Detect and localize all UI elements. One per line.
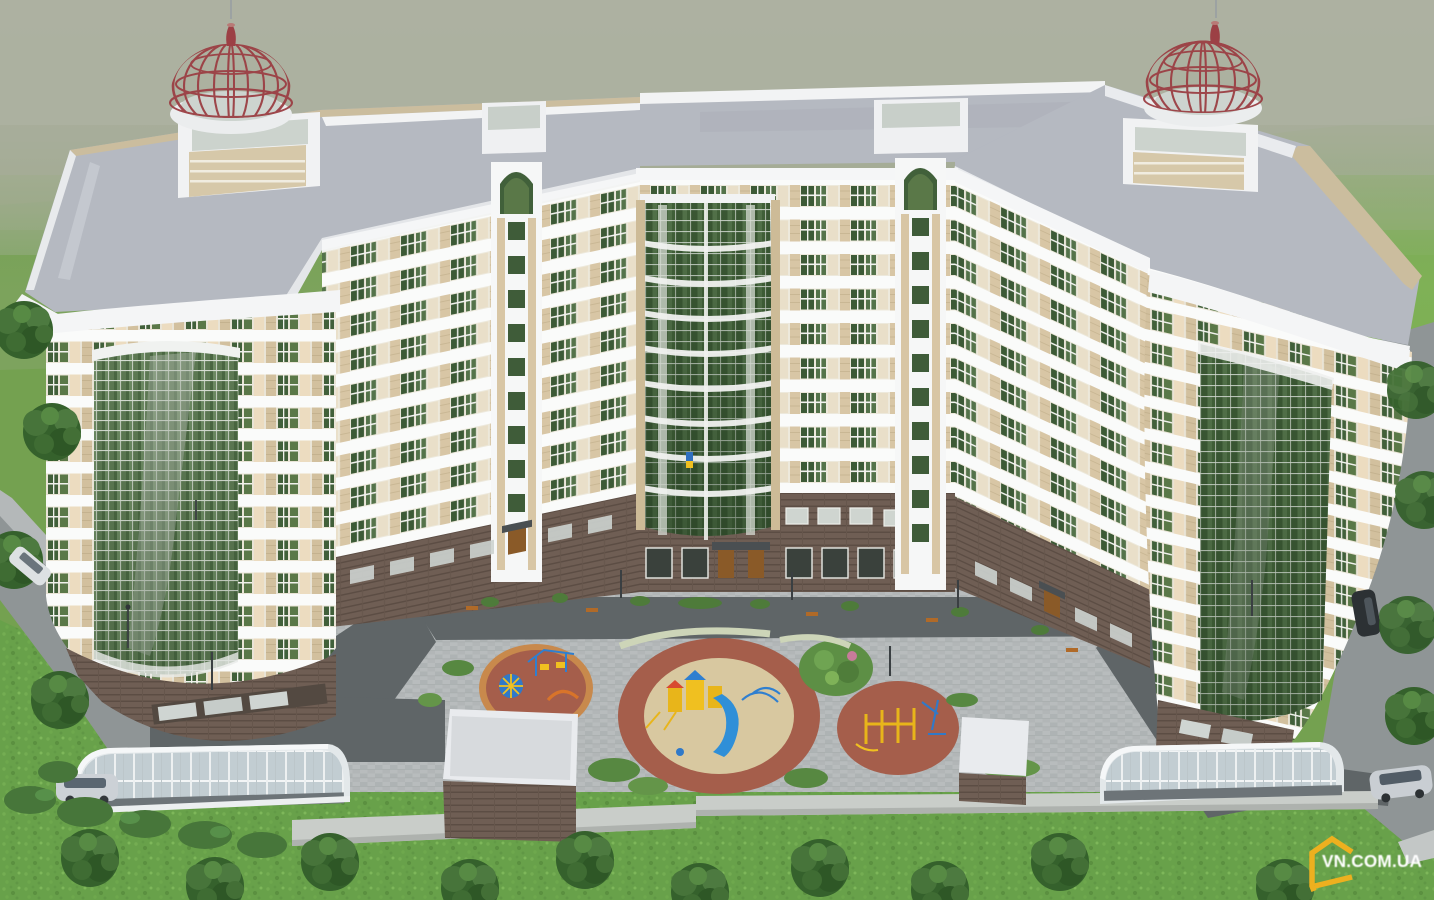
svg-text:VN.COM.UA: VN.COM.UA [1322, 851, 1422, 871]
